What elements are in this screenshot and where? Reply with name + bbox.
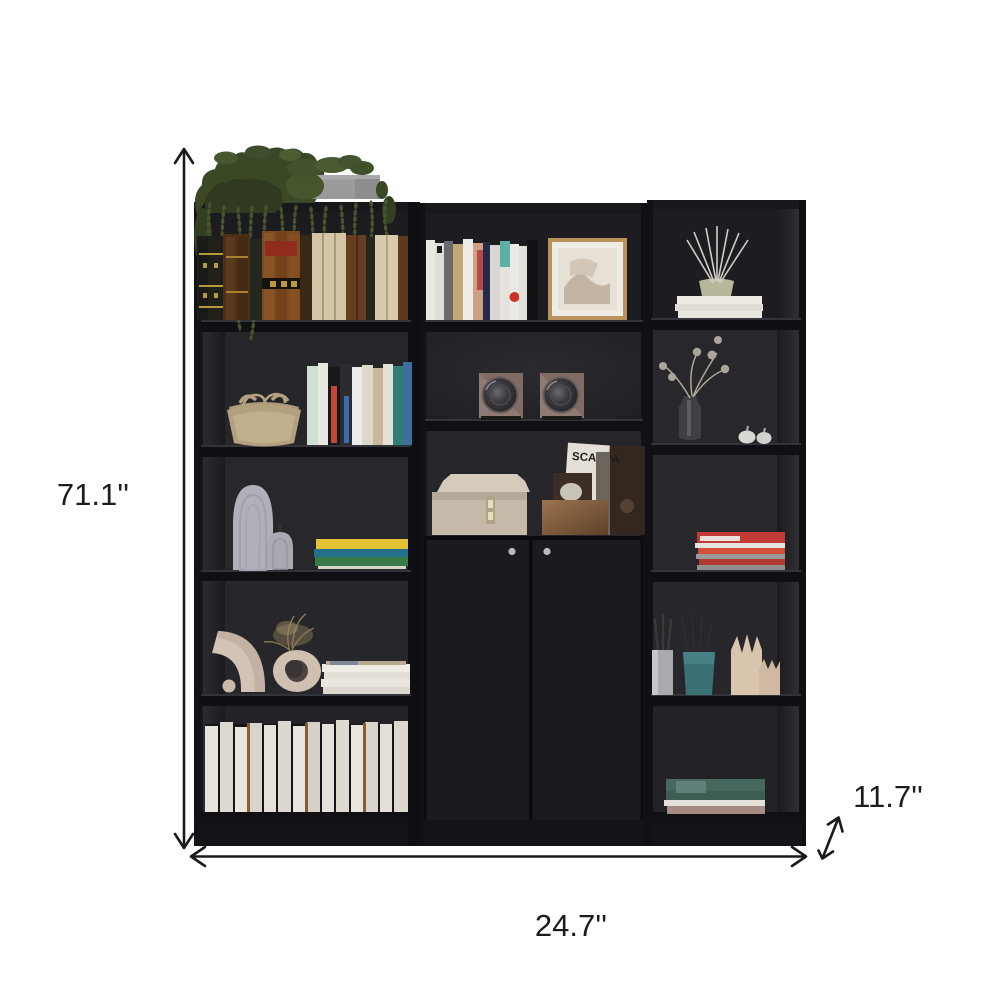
svg-text:11.7'': 11.7'' [853,779,923,814]
svg-text:24.7'': 24.7'' [535,908,607,943]
svg-text:71.1'': 71.1'' [57,477,129,512]
